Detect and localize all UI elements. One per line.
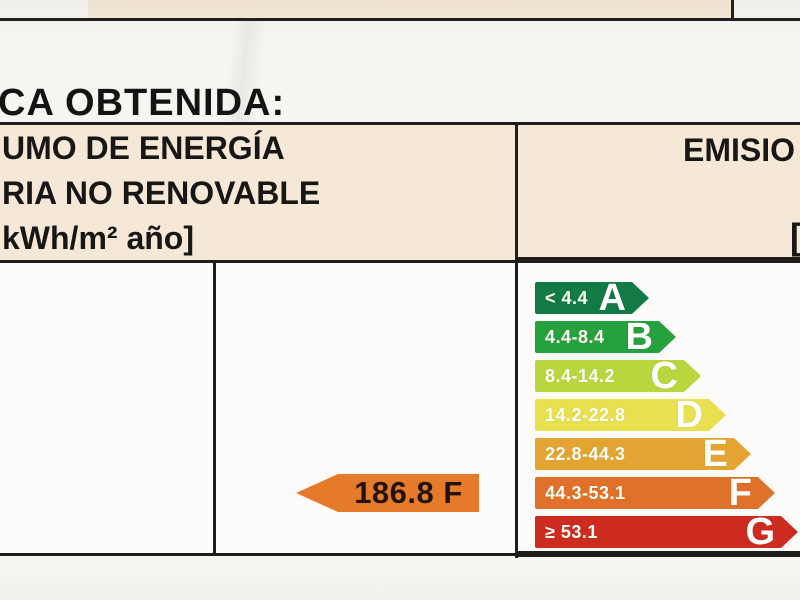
scale-row-c: 8.4-14.2 C	[535, 360, 798, 392]
page: { "page": { "title": "CA OBTENIDA:" }, "…	[0, 0, 800, 600]
scale-bar: 44.3-53.1 F	[535, 477, 758, 509]
table-border-top	[0, 122, 800, 125]
scale-range: 8.4-14.2	[535, 366, 615, 387]
scale-letter: E	[703, 438, 734, 470]
scale-letter: A	[599, 282, 632, 314]
body-cell-divider	[213, 261, 216, 556]
scale-arrow-tip-icon	[758, 477, 775, 509]
emissions-header: EMISIO	[683, 132, 795, 169]
energy-rating-scale: < 4.4 A 4.4-8.4 B 8.4-14.2 C 14.2-22.8 D	[535, 282, 798, 555]
scale-bar: ≥ 53.1 G	[535, 516, 781, 548]
consumption-header-line2: RIA NO RENOVABLE	[2, 171, 522, 216]
scale-row-a: < 4.4 A	[535, 282, 798, 314]
scale-letter: G	[745, 516, 781, 548]
page-title: CA OBTENIDA:	[0, 82, 285, 125]
scale-range: < 4.4	[535, 288, 588, 309]
scale-row-e: 22.8-44.3 E	[535, 438, 798, 470]
scale-bar: < 4.4 A	[535, 282, 632, 314]
result-arrow: 186.8 F	[296, 474, 479, 512]
header-left-cell: UMO DE ENERGÍA RIA NO RENOVABLE kWh/m² a…	[2, 126, 522, 261]
scale-bar: 14.2-22.8 D	[535, 399, 709, 431]
header-bottom-border-right	[516, 257, 800, 263]
scale-range: ≥ 53.1	[535, 522, 598, 543]
consumption-header-line1: UMO DE ENERGÍA	[2, 126, 522, 171]
scale-arrow-tip-icon	[781, 516, 798, 548]
scale-bar: 4.4-8.4 B	[535, 321, 659, 353]
scale-range: 22.8-44.3	[535, 444, 626, 465]
scale-letter: D	[676, 399, 709, 431]
scale-range: 44.3-53.1	[535, 483, 626, 504]
result-arrow-tip-icon	[296, 474, 338, 512]
scale-arrow-tip-icon	[734, 438, 751, 470]
previous-table-strip	[88, 0, 733, 19]
scale-arrow-tip-icon	[632, 282, 649, 314]
scale-bar: 22.8-44.3 E	[535, 438, 734, 470]
result-arrow-body: 186.8 F	[338, 474, 479, 512]
scale-letter: F	[729, 477, 758, 509]
emissions-units-bracket: [	[790, 216, 800, 258]
scale-bar: 8.4-14.2 C	[535, 360, 684, 392]
scale-letter: C	[651, 360, 684, 392]
scale-row-f: 44.3-53.1 F	[535, 477, 798, 509]
previous-table-column-border	[731, 0, 734, 21]
scale-letter: B	[626, 321, 659, 353]
consumption-units-label: kWh/m² año]	[2, 216, 522, 261]
scale-range: 14.2-22.8	[535, 405, 626, 426]
scale-row-g: ≥ 53.1 G	[535, 516, 798, 548]
scale-arrow-tip-icon	[684, 360, 701, 392]
table-border-bottom-left	[0, 553, 516, 556]
scale-arrow-tip-icon	[709, 399, 726, 431]
scale-range: 4.4-8.4	[535, 327, 605, 348]
scale-row-b: 4.4-8.4 B	[535, 321, 798, 353]
previous-table-bottom-border	[0, 18, 800, 21]
result-value: 186.8 F	[354, 475, 463, 511]
scale-row-d: 14.2-22.8 D	[535, 399, 798, 431]
scale-arrow-tip-icon	[659, 321, 676, 353]
